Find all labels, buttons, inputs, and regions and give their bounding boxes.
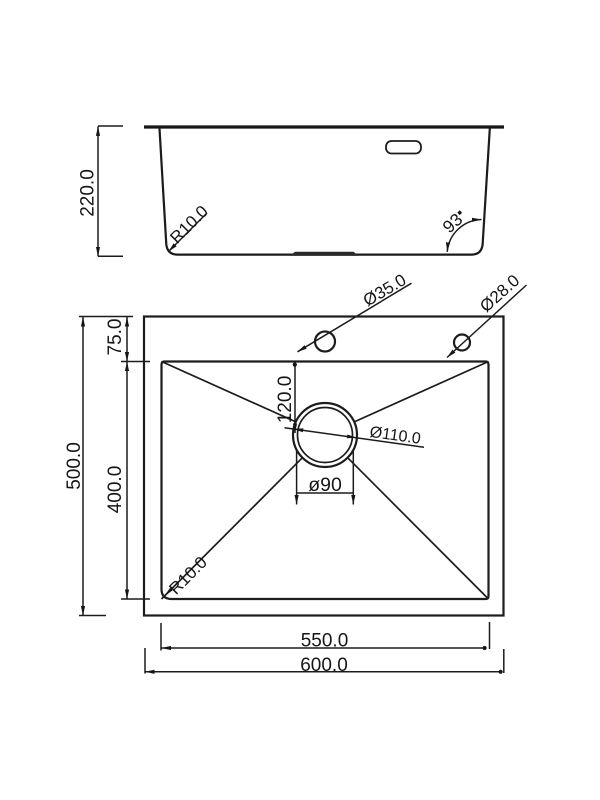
svg-text:Ø110.0: Ø110.0	[369, 424, 422, 448]
svg-text:Ø35.0: Ø35.0	[360, 270, 410, 310]
svg-text:93: 93	[439, 209, 467, 237]
svg-text:550.0: 550.0	[301, 631, 349, 652]
svg-text:120.0: 120.0	[275, 376, 296, 424]
svg-text:75.0: 75.0	[105, 319, 126, 356]
svg-text:R10.0: R10.0	[166, 202, 212, 248]
svg-text:500.0: 500.0	[64, 442, 85, 490]
svg-text:ø90: ø90	[308, 474, 342, 496]
svg-text:400.0: 400.0	[105, 466, 126, 514]
svg-text:R10.0: R10.0	[165, 553, 211, 599]
svg-text:600.0: 600.0	[300, 655, 348, 676]
svg-text:220.0: 220.0	[78, 169, 99, 217]
